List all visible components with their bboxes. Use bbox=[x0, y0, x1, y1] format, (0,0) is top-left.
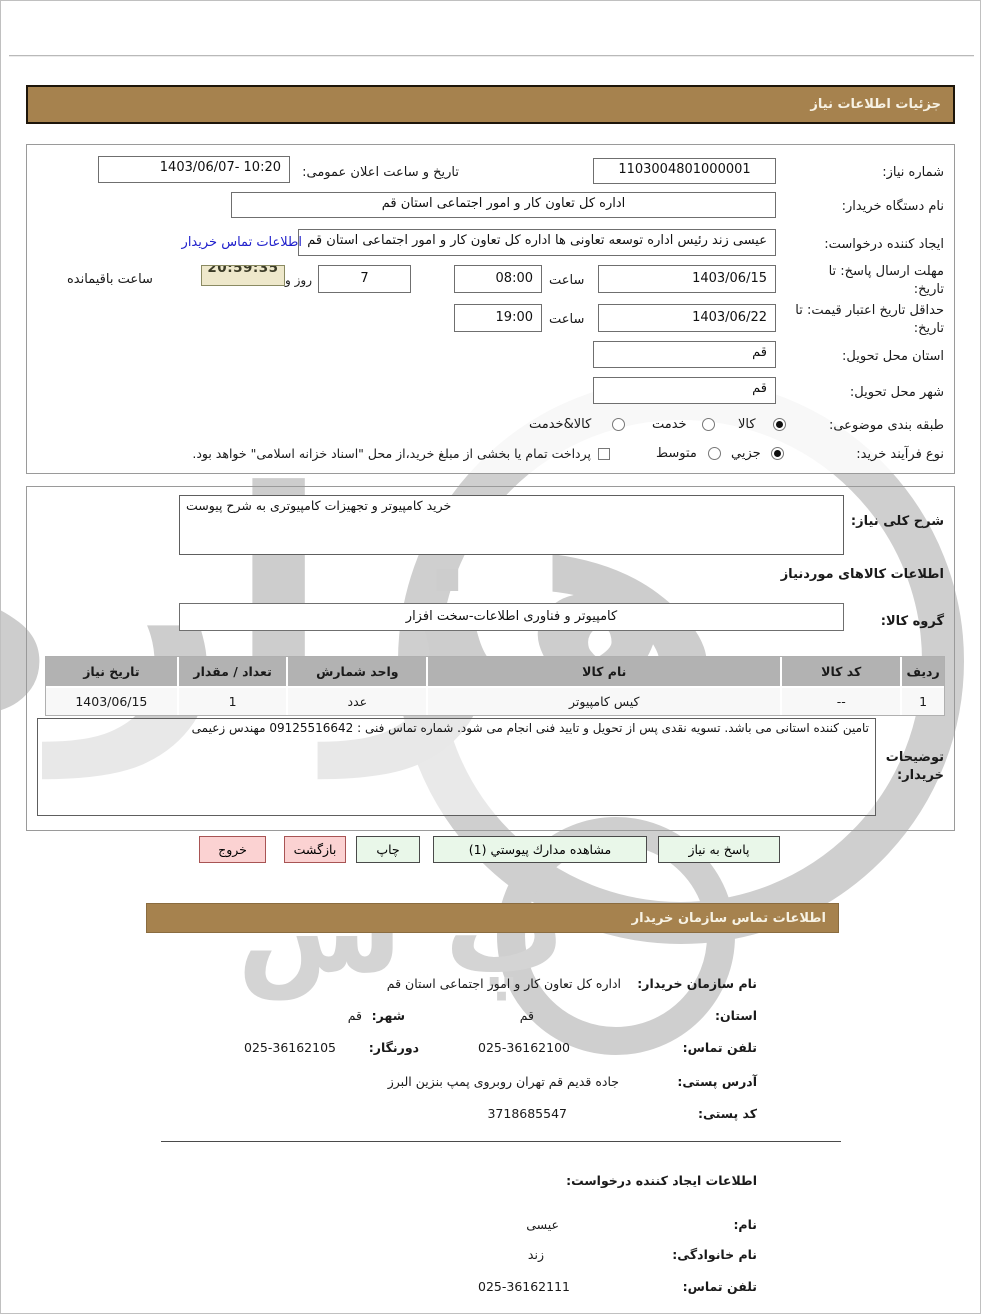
delivery-province-label: استان محل تحویل: bbox=[842, 348, 944, 366]
validity-date-field[interactable]: 1403/06/22 bbox=[598, 304, 776, 332]
deadline-time-field[interactable]: 08:00 bbox=[454, 265, 542, 293]
radio-goods-service-label: کالا&خدمت bbox=[529, 417, 591, 432]
cell-item-code: -- bbox=[782, 688, 900, 715]
request-creator-field[interactable]: عیسی زند رئیس اداره توسعه تعاونی ها ادار… bbox=[298, 229, 776, 256]
cell-item-name: کیس کامپیوتر bbox=[428, 688, 780, 715]
treasury-docs-label: پرداخت تمام یا بخشی از مبلغ خرید،از محل … bbox=[101, 446, 591, 461]
goods-info-heading: اطلاعات کالاهای موردنیاز bbox=[781, 566, 944, 584]
creator-info-heading: اطلاعات ایجاد کننده درخواست: bbox=[566, 1173, 757, 1188]
validity-time-field[interactable]: 19:00 bbox=[454, 304, 542, 332]
org-fax-label: دورنگار: bbox=[369, 1040, 419, 1055]
need-number-label: شماره نیاز: bbox=[882, 164, 944, 182]
respond-button[interactable]: پاسخ به نیاز bbox=[658, 836, 780, 863]
exit-button[interactable]: خروج bbox=[199, 836, 266, 863]
org-name-label: نام سازمان خریدار: bbox=[637, 976, 757, 991]
deadline-hour-label: ساعت bbox=[549, 273, 584, 288]
creator-first-name-value: عیسی bbox=[526, 1217, 559, 1232]
need-number-field[interactable]: 1103004801000001 bbox=[593, 158, 776, 184]
buyer-org-field[interactable]: اداره کل تعاون کار و امور اجتماعی استان … bbox=[231, 192, 776, 218]
cell-row-number: 1 bbox=[902, 688, 944, 715]
countdown-value: 20:59:35 bbox=[202, 265, 284, 276]
goods-group-field[interactable]: کامپیوتر و فناوری اطلاعات-سخت افزار bbox=[179, 603, 844, 631]
col-need-date: تاریخ نیاز bbox=[46, 657, 177, 686]
radio-minor-label: جزیي bbox=[731, 446, 761, 461]
validity-hour-label: ساعت bbox=[549, 312, 584, 327]
request-creator-label: ایجاد کننده درخواست: bbox=[824, 236, 944, 254]
col-quantity: تعداد / مقدار bbox=[179, 657, 287, 686]
cell-unit: عدد bbox=[288, 688, 426, 715]
buyer-notes-textarea[interactable]: تامین کننده استانی می باشد. تسویه نقدی پ… bbox=[37, 718, 876, 816]
col-row-number: ردیف bbox=[902, 657, 944, 686]
org-name-value: اداره کل تعاون کار و امور اجتماعی استان … bbox=[387, 976, 621, 991]
radio-minor[interactable] bbox=[771, 447, 784, 460]
creator-phone-label: تلفن تماس: bbox=[683, 1279, 757, 1294]
details-section-header: جزئیات اطلاعات نیاز bbox=[26, 85, 955, 124]
org-phone-label: تلفن تماس: bbox=[683, 1040, 757, 1055]
top-divider bbox=[9, 55, 974, 57]
buyer-org-label: نام دستگاه خریدار: bbox=[842, 198, 944, 216]
col-item-code: کد کالا bbox=[782, 657, 900, 686]
org-province-value: قم bbox=[520, 1008, 534, 1023]
announce-datetime-label: تاریخ و ساعت اعلان عمومی: bbox=[302, 164, 459, 182]
org-city-value: قم bbox=[348, 1008, 362, 1023]
org-address-label: آدرس پستی: bbox=[677, 1074, 757, 1089]
org-phone-value: 025-36162100 bbox=[478, 1040, 570, 1055]
org-postal-value: 3718685547 bbox=[487, 1106, 567, 1121]
section-divider bbox=[161, 1141, 841, 1142]
delivery-city-label: شهر محل تحویل: bbox=[850, 384, 944, 402]
col-item-name: نام کالا bbox=[428, 657, 780, 686]
cell-need-date: 1403/06/15 bbox=[46, 688, 177, 715]
buyer-contact-section-header: اطلاعات تماس سازمان خریدار bbox=[146, 903, 839, 933]
hours-remaining-label: ساعت باقیمانده bbox=[67, 272, 153, 287]
goods-table-header: ردیف کد کالا نام کالا واحد شمارش تعداد /… bbox=[46, 657, 944, 688]
creator-phone-value: 025-36162111 bbox=[478, 1279, 570, 1294]
org-province-label: استان: bbox=[715, 1008, 757, 1023]
need-details-window: هزاره پ س جزئیات اطلاعات نیاز شماره نیاز… bbox=[0, 0, 981, 1314]
radio-service-label: خدمت bbox=[652, 417, 687, 432]
process-type-label: نوع فرآیند خرید: bbox=[856, 446, 944, 464]
response-deadline-label: مهلت ارسال پاسخ: تا تاریخ: bbox=[816, 263, 944, 298]
radio-medium-label: متوسط bbox=[656, 446, 697, 461]
org-city-label: شهر: bbox=[372, 1008, 405, 1023]
cell-quantity: 1 bbox=[179, 688, 287, 715]
buyer-contact-link[interactable]: اطلاعات تماس خریدار bbox=[164, 235, 302, 250]
countdown-timer: 20:59:35 bbox=[201, 265, 285, 286]
radio-service[interactable] bbox=[702, 418, 715, 431]
goods-table: ردیف کد کالا نام کالا واحد شمارش تعداد /… bbox=[45, 656, 945, 716]
classification-label: طبقه بندی موضوعی: bbox=[829, 417, 944, 435]
treasury-docs-checkbox[interactable] bbox=[598, 448, 610, 460]
buyer-notes-label: توضیحات خریدار: bbox=[864, 749, 944, 784]
delivery-province-field[interactable]: قم bbox=[593, 341, 776, 368]
delivery-city-field[interactable]: قم bbox=[593, 377, 776, 404]
view-attachments-button[interactable]: مشاهده مدارك پیوستي (1) bbox=[433, 836, 647, 863]
creator-last-name-label: نام خانوادگی: bbox=[672, 1247, 757, 1262]
remaining-days-field[interactable]: 7 bbox=[318, 265, 411, 293]
col-unit: واحد شمارش bbox=[288, 657, 426, 686]
days-unit-label: روز و bbox=[285, 273, 312, 287]
radio-medium[interactable] bbox=[708, 447, 721, 460]
org-address-value: جاده قدیم قم تهران روبروی پمپ بنزین البر… bbox=[388, 1074, 619, 1089]
deadline-date-field[interactable]: 1403/06/15 bbox=[598, 265, 776, 293]
print-button[interactable]: چاپ bbox=[356, 836, 420, 863]
price-validity-label: حداقل تاریخ اعتبار قیمت: تا تاریخ: bbox=[786, 302, 944, 337]
goods-group-label: گروه کالا: bbox=[881, 613, 944, 631]
org-fax-value: 025-36162105 bbox=[244, 1040, 336, 1055]
radio-goods[interactable] bbox=[773, 418, 786, 431]
radio-goods-service[interactable] bbox=[612, 418, 625, 431]
need-description-label: شرح کلی نیاز: bbox=[851, 513, 944, 531]
radio-goods-label: کالا bbox=[738, 417, 756, 432]
need-description-textarea[interactable]: خرید کامپیوتر و تجهیزات کامپیوتری به شرح… bbox=[179, 495, 844, 555]
creator-first-name-label: نام: bbox=[733, 1217, 757, 1232]
org-postal-label: کد پستی: bbox=[698, 1106, 757, 1121]
back-button[interactable]: بازگشت bbox=[284, 836, 346, 863]
creator-last-name-value: زند bbox=[528, 1247, 544, 1262]
goods-table-row: 1 -- کیس کامپیوتر عدد 1 1403/06/15 bbox=[46, 688, 944, 715]
announce-datetime-field[interactable]: 1403/06/07- 10:20 bbox=[98, 156, 290, 183]
